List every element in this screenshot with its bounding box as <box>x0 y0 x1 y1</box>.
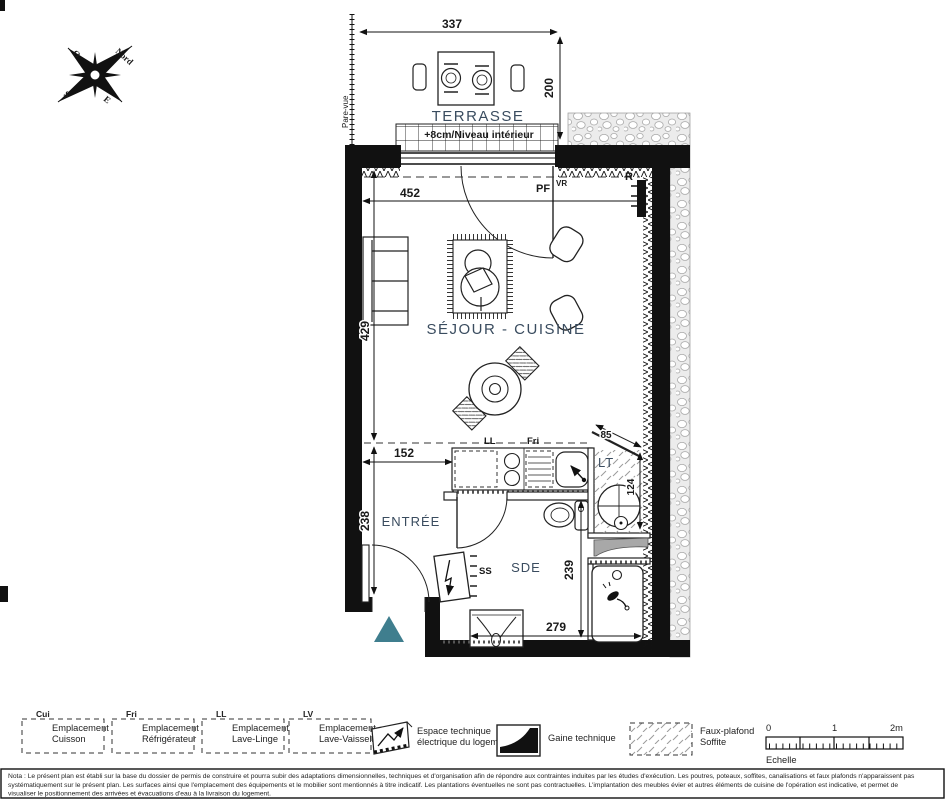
legend-electrical-label: Espace technique <box>417 726 491 736</box>
dim-bay: 452 <box>400 186 420 200</box>
scale-tick-1: 1 <box>832 723 837 733</box>
washer-tag: LL <box>484 436 496 447</box>
legend-duct-icon <box>497 725 540 756</box>
legend-ceiling-label: Soffite <box>700 737 726 747</box>
legend-slot-refrigerateur: Fri Emplacement Réfrigérateur <box>112 709 199 753</box>
floor-plan-page: Nord O S E Pare-vue TERRASSE +8cm/Niveau… <box>0 0 946 800</box>
legend-label: Emplacement <box>232 723 289 733</box>
panel-tag: SS <box>479 566 492 577</box>
footer-line-3: visualiser le positionnement des arrivée… <box>8 791 271 798</box>
footer-line-1: Nota : Le présent plan est établi sur la… <box>8 773 915 780</box>
technical-closet-label: LT <box>598 455 614 470</box>
sde-door <box>457 497 507 548</box>
shower-room-label: SDE <box>511 560 541 575</box>
legend-duct-label: Gaine technique <box>548 733 616 743</box>
legend-ceiling-icon <box>630 723 692 755</box>
dim-entry-width: 152 <box>394 446 414 460</box>
legend-ceiling-label: Faux-plafond <box>700 726 754 736</box>
legend-abbr: Cui <box>36 709 50 719</box>
dim-entry-height: 238 <box>358 511 372 531</box>
pare-vue-label: Pare-vue <box>341 95 350 128</box>
entrance-door <box>362 545 429 612</box>
terrace-label: TERRASSE <box>432 108 525 125</box>
technical-duct <box>594 538 648 556</box>
shutter-tag: VR <box>556 179 567 188</box>
entry-label: ENTRÉE <box>382 514 441 529</box>
dim-living-height: 429 <box>358 321 372 341</box>
terrace-table-set <box>413 52 524 105</box>
legend-label: Lave-Vaisselle <box>319 734 379 744</box>
legend-slot-lave-linge: LL Emplacement Lave-Linge <box>202 709 289 753</box>
legend-label: Réfrigérateur <box>142 734 196 744</box>
bay-window-tag: PF <box>536 183 550 195</box>
scale-label: Echelle <box>766 755 797 765</box>
legend-label: Emplacement <box>52 723 109 733</box>
electrical-panel <box>434 552 477 602</box>
scale-tick-2: 2m <box>890 723 903 733</box>
legend-slot-cuisson: Cui Emplacement Cuisson <box>22 709 109 753</box>
dining-table-set <box>453 347 539 430</box>
dim-bath-width: 279 <box>546 620 566 634</box>
scale-bar: 0 1 2m Echelle <box>766 723 903 765</box>
deck-grating <box>396 124 558 151</box>
legend-label: Emplacement <box>142 723 199 733</box>
vanity-sink <box>443 610 523 647</box>
fridge-tag: Fri <box>527 436 539 447</box>
sofa <box>363 237 408 325</box>
dim-tech-height: 124 <box>626 478 637 495</box>
radiator-tag: R <box>625 171 633 183</box>
radiator: R <box>625 171 646 217</box>
terrace: Pare-vue TERRASSE +8cm/Niveau intérieur <box>341 14 558 151</box>
compass-rose: Nord O S E <box>58 46 135 105</box>
compass-east-label: E <box>102 94 113 106</box>
floor-plan-drawing: Nord O S E Pare-vue TERRASSE +8cm/Niveau… <box>0 0 946 800</box>
dim-terrace-width: 337 <box>442 17 462 31</box>
legend-label: Emplacement <box>319 723 376 733</box>
legend-electrical-icon <box>372 722 412 754</box>
scale-tick-0: 0 <box>766 723 771 733</box>
kitchen-sink <box>556 452 588 487</box>
legend-abbr: Fri <box>126 709 137 719</box>
entrance-marker <box>374 616 404 642</box>
legend-abbr: LV <box>303 709 314 719</box>
legend-slot-lave-vaisselle: LV Emplacement Lave-Vaisselle <box>289 709 379 753</box>
living-room-label: SÉJOUR - CUISINE <box>426 321 585 338</box>
shower <box>590 562 648 642</box>
legend-label: Cuisson <box>52 734 86 744</box>
footer-line-2: systématiquement sur le présent plan. Le… <box>8 782 898 789</box>
legend-label: Lave-Linge <box>232 734 278 744</box>
legend-abbr: LL <box>216 709 226 719</box>
dim-tech-door: 85 <box>600 430 612 441</box>
legend: Cui Emplacement Cuisson Fri Emplacement … <box>22 709 903 765</box>
footer-note: Nota : Le présent plan est établi sur la… <box>1 769 944 798</box>
dim-bath-height: 239 <box>562 560 576 580</box>
dim-terrace-depth: 200 <box>542 78 556 98</box>
